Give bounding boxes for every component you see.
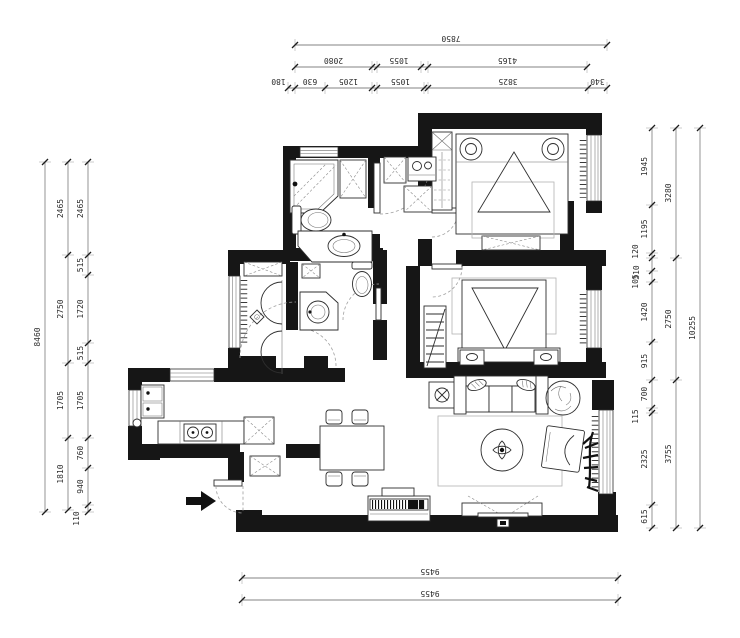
window-bedroom2-right [583, 290, 601, 348]
dim-label: 10255 [688, 316, 697, 340]
dim-label: 2080 [324, 56, 343, 65]
entry-door [214, 480, 243, 513]
bath-shelf [302, 264, 320, 278]
dim-label: 115 [631, 409, 640, 424]
dim-label: 340 [590, 77, 605, 86]
toilet-2 [352, 262, 372, 297]
dim-chain-left-0: 8460 [33, 159, 51, 515]
dim-label: 2325 [640, 449, 649, 468]
shower [290, 160, 338, 213]
dim-chain-right-1: 328027503755 [664, 125, 682, 531]
dim-label: 1205 [339, 77, 358, 86]
dim-label: 2465 [76, 199, 85, 218]
shower-glass [340, 160, 366, 198]
fridge [244, 417, 274, 444]
dim-label: 2750 [56, 299, 65, 318]
side-table [429, 382, 455, 408]
dim-label: 1705 [56, 391, 65, 410]
dim-label: 3280 [664, 183, 673, 202]
kettle [133, 419, 141, 427]
vanity-sink [298, 231, 372, 262]
dim-label: 110 [72, 511, 81, 526]
dim-label: 8460 [33, 327, 42, 346]
window-living-right [595, 410, 613, 494]
floor-plan-canvas: 7850208010554165180630120510553825340945… [0, 0, 740, 638]
dim-label: 1055 [391, 77, 410, 86]
wall-outlet [497, 519, 509, 527]
vanity-sink-2 [300, 292, 338, 330]
dim-label: 1705 [76, 391, 85, 410]
stove [184, 424, 216, 441]
dim-label: 120 [631, 244, 640, 259]
window-master-right [583, 135, 601, 201]
dim-chain-right-0: 1945119512031010514209157001152325615 [631, 125, 658, 531]
toilet [292, 206, 331, 234]
dim-label: 4165 [498, 56, 517, 65]
laundry-cabinet [384, 157, 406, 183]
dim-label: 7850 [441, 34, 460, 43]
tv-dresser [482, 236, 540, 250]
sofa [454, 376, 548, 414]
dim-label: 1720 [76, 299, 85, 318]
dim-label: 1945 [640, 157, 649, 176]
armchair [541, 426, 584, 473]
second-bed [452, 278, 560, 365]
kitchen-sink [141, 385, 164, 418]
hall-cabinet [250, 456, 280, 476]
closet-cabinet [244, 262, 282, 276]
dim-chain-left-1: 2465275017051810 [56, 159, 74, 513]
furniture [133, 132, 598, 527]
piano [368, 488, 430, 521]
window-kitchen-top [170, 369, 214, 381]
dining-chair [326, 472, 342, 486]
dim-chain-right-2: 10255 [688, 125, 706, 531]
floor-plan-drawing: 7850208010554165180630120510553825340945… [0, 0, 740, 638]
dim-label: 2465 [56, 199, 65, 218]
dim-chain-top-1: 208010554165 [292, 56, 590, 73]
dim-label: 515 [76, 346, 85, 361]
dim-chain-top-0: 7850 [292, 34, 610, 51]
washing-machine [408, 157, 436, 181]
dim-chain-top-2: 180630120510553825340 [271, 77, 610, 94]
dining-chair [352, 472, 368, 486]
dim-label: 760 [76, 446, 85, 461]
dim-label: 700 [640, 387, 649, 402]
dim-chain-bottom-1: 9455 [239, 589, 621, 606]
dim-label: 1055 [389, 56, 408, 65]
dining-chair [352, 410, 368, 424]
dining-chair [326, 410, 342, 424]
bedroom2-door [432, 264, 462, 297]
dim-label: 1420 [640, 302, 649, 321]
window-bath-top [300, 147, 338, 157]
dim-label: 1810 [56, 464, 65, 483]
laundry-cabinet-2 [404, 186, 432, 212]
floor-drain [250, 310, 264, 324]
dim-label: 515 [76, 258, 85, 273]
dim-label: 630 [303, 77, 318, 86]
dim-label: 9455 [420, 567, 439, 576]
dim-chain-bottom-0: 9455 [239, 567, 621, 584]
master-bed [456, 134, 568, 238]
dim-label: 615 [640, 509, 649, 524]
window-closet-left [229, 276, 244, 348]
entry-arrow [186, 491, 216, 511]
dim-label: 180 [271, 77, 286, 86]
dim-label: 915 [640, 354, 649, 369]
dim-label: 9455 [420, 589, 439, 598]
dining-table [320, 426, 384, 470]
master-bedroom-door [432, 208, 458, 237]
plant [546, 381, 580, 415]
dim-label: 3755 [664, 444, 673, 463]
clothes-rack [424, 306, 446, 368]
coffee-table [481, 429, 523, 471]
dim-label: 2750 [664, 309, 673, 328]
dim-chain-left-2: 246551517205151705760940110 [72, 159, 94, 526]
dim-label: 3825 [498, 77, 517, 86]
dim-label: 105 [631, 274, 640, 289]
tv-cabinet [462, 496, 542, 517]
dim-label: 940 [76, 479, 85, 494]
dim-label: 1195 [640, 219, 649, 238]
